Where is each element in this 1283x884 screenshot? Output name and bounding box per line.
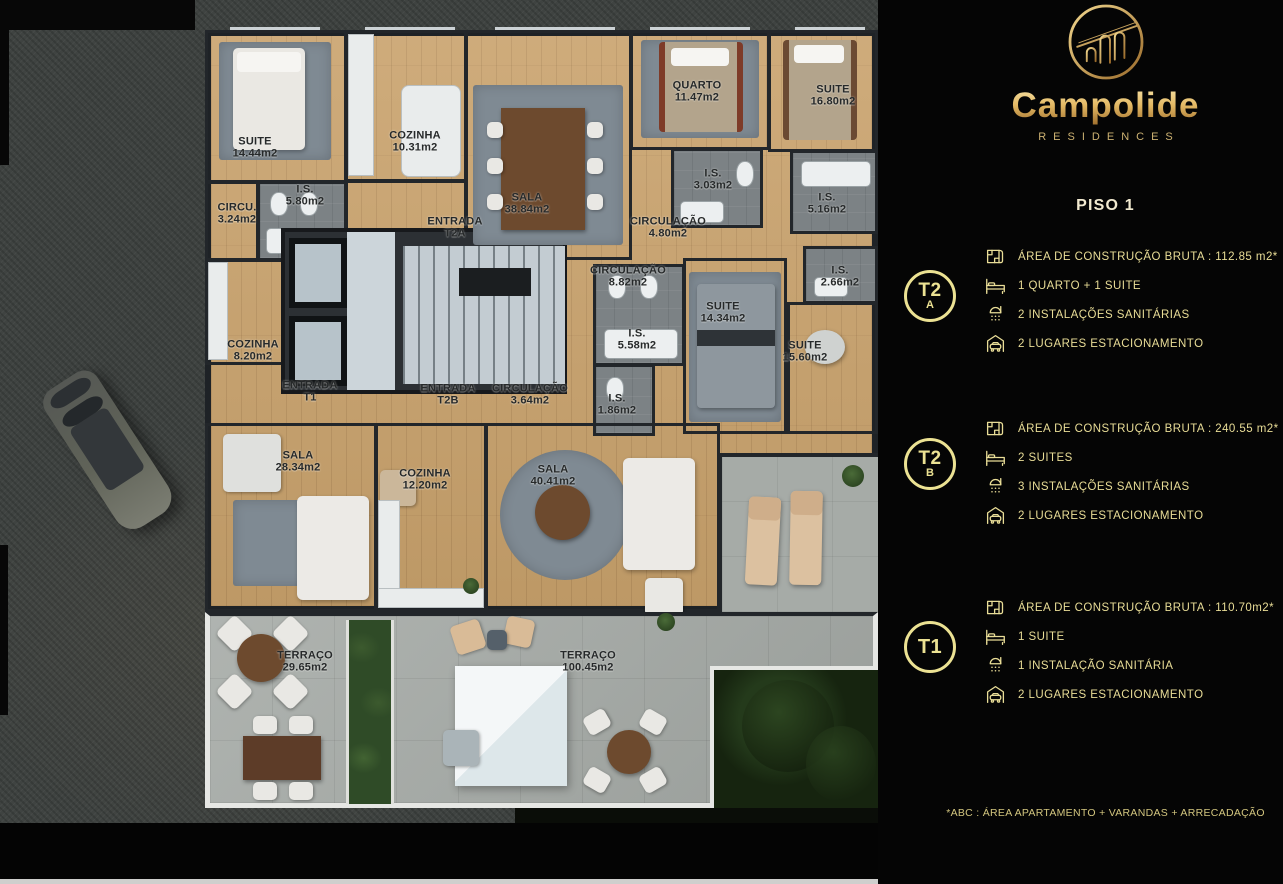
hedge-planter [346, 620, 394, 804]
bed-icon [985, 275, 1006, 296]
room-label: SUITE14.44m2 [233, 136, 278, 161]
round-table-sala-4041 [535, 485, 590, 540]
edge-shadow-left [0, 0, 9, 165]
room-label: QUARTO11.47m2 [673, 80, 722, 105]
spec-row: 3 INSTALAÇÕES SANITÁRIAS [985, 472, 1277, 501]
brand-block: Campolide RESIDENCES [933, 2, 1278, 143]
room-label: I.S.5.58m2 [618, 328, 657, 353]
stairwell [403, 246, 565, 384]
room-label: CIRCULAÇÃO3.64m2 [492, 383, 568, 408]
room-label: COZINHA8.20m2 [227, 339, 279, 364]
unit-badge-t2b: T2B [904, 438, 956, 490]
unit-badge-t1: T1 [904, 621, 956, 673]
room-label: COZINHA10.31m2 [389, 130, 441, 155]
spec-row: 1 SUITE [985, 622, 1277, 651]
shower-icon [985, 655, 1006, 676]
unit-specs-t2b: ÁREA DE CONSTRUÇÃO BRUTA : 240.55 m2* 2 … [985, 414, 1277, 530]
bed-suite-1444 [233, 48, 305, 150]
room-label: I.S.3.03m2 [694, 168, 733, 193]
info-panel: Campolide RESIDENCES PISO 1 T2A ÁREA DE … [878, 0, 1283, 884]
room-label: I.S.5.16m2 [808, 192, 847, 217]
room-label: I.S.2.66m2 [821, 265, 860, 290]
room-label: SALA28.34m2 [276, 450, 321, 475]
brand-subtitle: RESIDENCES [1031, 131, 1180, 143]
stair-elevator-core [281, 228, 567, 394]
garden-shadow-strip [515, 808, 878, 823]
room-label: ENTRADAT2A [427, 216, 482, 241]
room-label: TERRAÇO29.65m2 [277, 650, 333, 675]
spec-row: ÁREA DE CONSTRUÇÃO BRUTA : 112.85 m2* [985, 242, 1277, 271]
garden [710, 666, 878, 808]
garage-icon [985, 684, 1006, 705]
kitchen-counter [348, 34, 374, 176]
footnote: *ABC : ÁREA APARTAMENTO + VARANDAS + ARR… [933, 807, 1278, 819]
garage-icon [985, 333, 1006, 354]
brand-name: Campolide [1012, 86, 1200, 126]
spec-row: ÁREA DE CONSTRUÇÃO BRUTA : 110.70m2* [985, 593, 1277, 622]
room-label: TERRAÇO100.45m2 [560, 650, 616, 675]
spec-row: 1 INSTALAÇÃO SANITÁRIA [985, 651, 1277, 680]
elevator-2 [289, 316, 347, 386]
sun-lounger [789, 491, 823, 586]
sofa-sala-2834 [297, 496, 369, 600]
spec-row: 2 LUGARES ESTACIONAMENTO [985, 680, 1277, 709]
room-suite-1560 [787, 302, 878, 434]
room-label: ENTRADAT1 [282, 380, 337, 405]
palm-tree [806, 726, 876, 802]
terrace-right [718, 453, 878, 612]
armchair-round [645, 578, 683, 616]
bed-icon [985, 626, 1006, 647]
shower-icon [985, 304, 1006, 325]
spec-row: 1 QUARTO + 1 SUITE [985, 271, 1277, 300]
room-label: SUITE16.80m2 [811, 84, 856, 109]
room-label: I.S.5.80m2 [286, 184, 325, 209]
floorplan-icon [985, 246, 1006, 267]
room-label: SALA38.84m2 [505, 192, 550, 217]
floorplan-icon [985, 418, 1006, 439]
aqueduct-arches-logo-icon [1066, 2, 1146, 82]
spec-row: 2 LUGARES ESTACIONAMENTO [985, 501, 1277, 530]
room-label: CIRCU.3.24m2 [217, 202, 256, 227]
spec-row: 2 INSTALAÇÕES SANITÁRIAS [985, 300, 1277, 329]
floorplan-icon [985, 597, 1006, 618]
corner-shadow-top-left [0, 0, 195, 30]
room-label: SUITE15.60m2 [783, 340, 828, 365]
shower-icon [985, 476, 1006, 497]
room-label: CIRCULAÇÃO8.82m2 [590, 265, 666, 290]
garage-icon [985, 505, 1006, 526]
room-label: CIRCULAÇÃO4.80m2 [630, 216, 706, 241]
terrace-dining-table [243, 736, 321, 780]
kitchen-counter-t1 [208, 262, 228, 360]
building-floorplan: SUITE14.44m2 COZINHA10.31m2 SALA38.84m2 … [205, 30, 878, 808]
terrace-round-table-2 [607, 730, 651, 774]
unit-specs-t1: ÁREA DE CONSTRUÇÃO BRUTA : 110.70m2* 1 S… [985, 593, 1277, 709]
spec-row: 2 SUITES [985, 443, 1277, 472]
room-label: SUITE14.34m2 [701, 301, 746, 326]
spec-row: ÁREA DE CONSTRUÇÃO BRUTA : 240.55 m2* [985, 414, 1277, 443]
round-table-sala-2834 [223, 434, 281, 492]
bed-icon [985, 447, 1006, 468]
sun-lounger [745, 496, 782, 586]
sofa-sala-4041 [623, 458, 695, 570]
unit-specs-t2a: ÁREA DE CONSTRUÇÃO BRUTA : 112.85 m2* 1 … [985, 242, 1277, 358]
spec-row: 2 LUGARES ESTACIONAMENTO [985, 329, 1277, 358]
floor-title: PISO 1 [933, 197, 1278, 215]
room-label: SALA40.41m2 [531, 464, 576, 489]
room-label: ENTRADAT2B [420, 383, 475, 408]
fire-pit [443, 730, 479, 766]
campolide-floorplan-poster: SUITE14.44m2 COZINHA10.31m2 SALA38.84m2 … [0, 0, 1283, 884]
room-label: COZINHA12.20m2 [399, 468, 451, 493]
room-label: I.S.1.86m2 [598, 393, 637, 418]
pergola-awning [455, 666, 567, 786]
edge-shadow-left-lower [0, 545, 8, 715]
unit-badge-t2a: T2A [904, 270, 956, 322]
elevator-1 [289, 238, 347, 308]
